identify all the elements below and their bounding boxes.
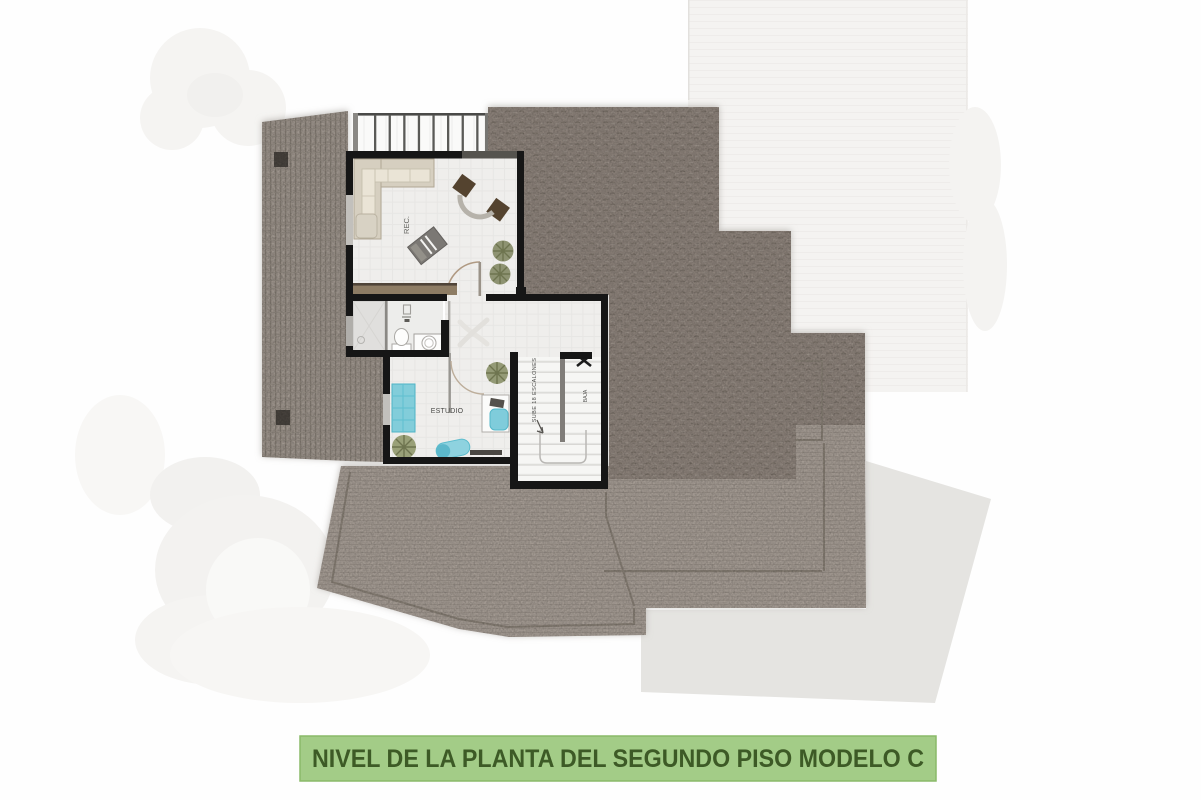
- svg-text:SUBE 18 ESCALONES: SUBE 18 ESCALONES: [532, 358, 538, 423]
- svg-text:BAJA: BAJA: [583, 389, 589, 402]
- svg-text:REC.: REC.: [402, 216, 411, 234]
- svg-text:NIVEL DE LA PLANTA DEL SEGUND: NIVEL DE LA PLANTA DEL SEGUNDO PISO MODE…: [312, 745, 924, 773]
- svg-text:ESTUDIO: ESTUDIO: [431, 408, 464, 415]
